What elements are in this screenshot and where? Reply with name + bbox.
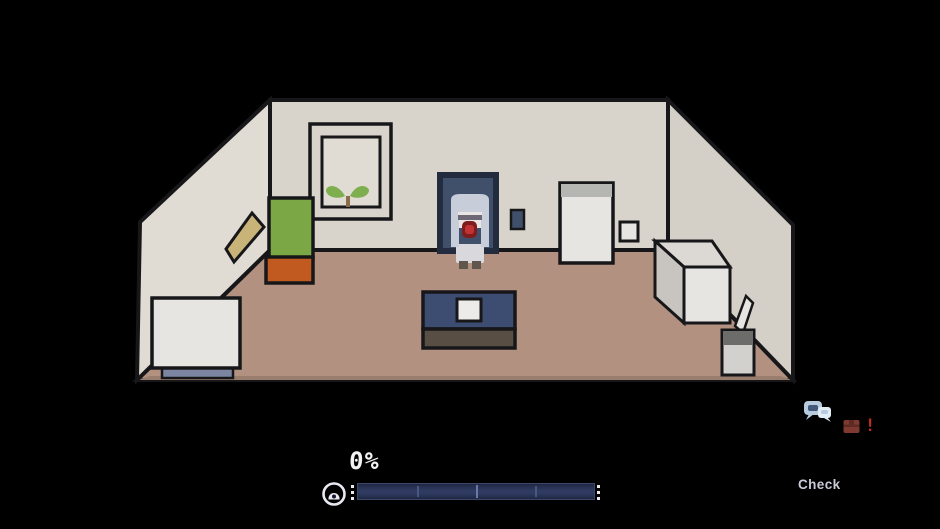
painting[interactable] xyxy=(310,124,391,219)
player-character[interactable] xyxy=(451,194,489,269)
bar-left-dots xyxy=(351,485,354,500)
bar-tick-50 xyxy=(476,485,478,498)
character-hair-lock xyxy=(481,220,489,247)
cube-front-face xyxy=(684,267,730,323)
chat-bubbles-icon xyxy=(802,398,836,428)
tv-screen xyxy=(457,299,481,321)
bar-tick-25 xyxy=(417,486,419,497)
item-alert-icon xyxy=(842,415,862,437)
bar-right-dots xyxy=(597,485,600,500)
game-viewport[interactable]: 0% Check ! xyxy=(0,0,940,529)
tv-base xyxy=(423,329,515,348)
refrigerator-top-band xyxy=(561,184,612,197)
character-hair-lock xyxy=(451,220,459,247)
refrigerator[interactable] xyxy=(560,183,613,263)
trash-bin-lid xyxy=(723,331,753,345)
character-eyes xyxy=(457,215,483,220)
character-foot xyxy=(472,261,481,269)
orange-box[interactable] xyxy=(266,257,313,283)
character-mouth-inner xyxy=(465,225,474,234)
alert-exclamation-mark: ! xyxy=(865,415,875,437)
washing-machine[interactable] xyxy=(152,298,240,378)
character-foot xyxy=(459,261,468,269)
item-alert-indicator: ! xyxy=(842,415,875,437)
character-dress xyxy=(456,244,484,263)
progress-percent-label: 0% xyxy=(348,447,380,475)
green-box[interactable] xyxy=(269,198,313,258)
light-switch[interactable] xyxy=(511,210,524,229)
trash-bin[interactable] xyxy=(722,330,754,375)
bar-tick-75 xyxy=(535,486,537,497)
wall-panel[interactable] xyxy=(620,222,638,241)
check-action-label: Check xyxy=(798,477,841,492)
dream-progress-bar xyxy=(357,483,595,500)
tv-stand[interactable] xyxy=(423,292,515,348)
floor-edge-shade xyxy=(137,376,793,380)
room-scene xyxy=(0,0,940,529)
eye-icon xyxy=(319,480,349,508)
